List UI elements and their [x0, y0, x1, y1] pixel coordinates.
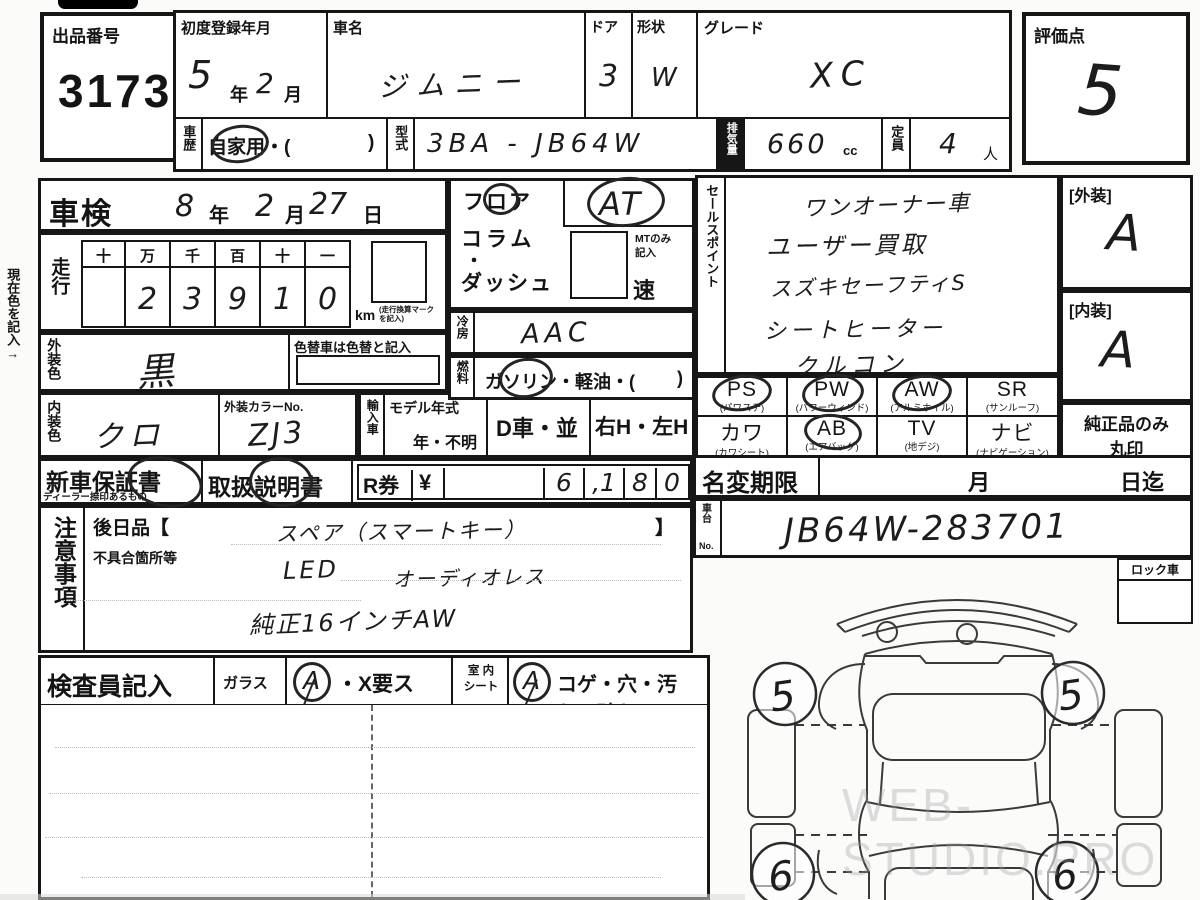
shape-cell: 形状 W	[633, 13, 698, 119]
mileage-mark-box	[371, 241, 427, 303]
divider	[451, 658, 453, 704]
transfer-due-label: 日迄	[1120, 465, 1164, 497]
dealer-car-cell: D車・並	[488, 395, 591, 455]
lot-number-value: 3173	[58, 64, 172, 118]
dotted-line	[231, 544, 661, 545]
later-items-close: 】	[655, 513, 674, 540]
later-items-label: 後日品【	[93, 513, 169, 540]
notes-box: 注意事項 後日品【 スペア（スマートキー） 】 不具合箇所等 LED オーディオ…	[38, 505, 693, 653]
defects-label: 不具合箇所等	[93, 548, 177, 568]
mileage-header: 十	[261, 240, 306, 266]
chassis-label-top: 車台	[699, 503, 711, 523]
defect-value-wheels: 純正16インチAW	[248, 598, 457, 640]
mileage-note: (走行換算マーク を記入)	[379, 305, 447, 324]
exterior-color-label: 外装色	[47, 338, 61, 380]
car-name-value: ジムニー	[377, 60, 530, 105]
mileage-header: 十	[81, 240, 126, 266]
shape-value: W	[651, 63, 677, 93]
chassis-label-no: No.	[699, 541, 714, 551]
equipment-name: (サンルーフ)	[968, 400, 1057, 414]
notes-label-cell: 注意事項	[41, 508, 85, 650]
capacity-unit: 人	[983, 143, 998, 164]
price-digit: 8	[623, 468, 655, 499]
first-registration-label: 初度登録年月	[181, 17, 271, 38]
dotted-line	[61, 600, 361, 601]
equipment-cell-ab: AB (エアバッグ)	[788, 417, 878, 455]
tire-grade-rear-left: 6	[766, 853, 796, 900]
equipment-grid: PS (パワステ) PW (パワーウィンド) AW (アルミホイル) SR (サ…	[695, 375, 1060, 458]
grade-value: XC	[809, 53, 873, 96]
door-cell: ドア 3	[586, 13, 633, 119]
capacity-label: 定員	[890, 125, 903, 151]
sales-point-line: シートヒーター	[764, 310, 947, 345]
hood-step-line	[865, 656, 1052, 663]
history-close-paren: )	[368, 132, 374, 154]
color-change-note: 色替車は色替と記入	[294, 337, 411, 356]
exterior-color-value: 黒	[134, 340, 176, 398]
fuel-label: 燃料	[456, 360, 468, 384]
shaken-month: 2	[255, 189, 274, 224]
grade-cell: グレード XC	[698, 13, 1009, 119]
divider	[507, 658, 509, 704]
shaken-year-unit: 年	[209, 199, 229, 228]
mileage-grid: 十 万 千 百 十 一 2 3 9 1 0	[81, 240, 351, 328]
door-label: ドア	[590, 17, 618, 37]
color-change-box	[296, 355, 440, 385]
equipment-code: SR	[968, 378, 1057, 402]
divider	[818, 458, 820, 495]
transmission-box: フロア コラム ・ ダッシュ AT MTのみ 記入 速	[448, 178, 695, 310]
mt-note-line1: MTのみ	[635, 233, 671, 247]
lock-car-box: ロック車	[1117, 558, 1193, 624]
exterior-rating-value: A	[1106, 203, 1143, 263]
lock-car-label: ロック車	[1119, 560, 1191, 581]
hand-circle-mark	[496, 354, 555, 401]
score-label: 評価点	[1034, 22, 1085, 47]
dotted-line	[45, 837, 703, 838]
displacement-label: 排気量	[725, 122, 736, 155]
sales-point-line: ユーザー買取	[766, 225, 928, 263]
equipment-name: (地デジ)	[878, 439, 966, 453]
chassis-number-row: 車台 No. JB64W-283701	[693, 498, 1193, 558]
equipment-cell-sr: SR (サンルーフ)	[968, 378, 1057, 417]
equipment-cell-navi: ナビ (ナビゲーション)	[968, 417, 1057, 455]
sales-point-line: ワンオーナー車	[802, 185, 971, 223]
mt-speed-box	[570, 231, 628, 299]
equipment-cell-ps: PS (パワステ)	[698, 378, 788, 417]
equipment-cell-leather: カワ (カワシート)	[698, 417, 788, 455]
price-digit: 0	[655, 468, 687, 499]
watermark: WEB-STUDIO.PRO	[842, 778, 1200, 886]
sales-points-label-cell: セールスポイント	[698, 178, 726, 372]
mileage-header: 一	[306, 240, 351, 266]
at-cell: AT	[563, 181, 692, 227]
mileage-digit	[81, 266, 126, 328]
recycle-ticket-table: R券 ¥ 6 ,1 8 0	[357, 464, 690, 500]
displacement-value-cell: 660 cc	[745, 119, 883, 169]
divider	[285, 658, 287, 704]
chassis-number-value: JB64W-283701	[784, 507, 1070, 552]
chassis-label-cell: 車台 No.	[696, 501, 722, 555]
front-fender-left	[819, 664, 865, 729]
model-year-label: モデル年式	[389, 398, 459, 418]
mileage-digit: 1	[261, 266, 306, 328]
score-box: 評価点 5	[1022, 12, 1190, 165]
sales-points-label: セールスポイント	[705, 184, 718, 288]
sales-points-box: セールスポイント ワンオーナー車 ユーザー買取 スズキセーフティS シートヒータ…	[695, 175, 1060, 375]
exterior-color-box: 外装色 黒 色替車は色替と記入	[38, 332, 448, 392]
fuel-close-paren: )	[677, 368, 683, 389]
price-digit: ,1	[583, 468, 623, 499]
equipment-cell-aw: AW (アルミホイル)	[878, 378, 968, 417]
lot-number-box: 出品番号 3173	[40, 12, 192, 162]
grade-label: グレード	[704, 17, 764, 38]
defect-value-audioless: オーディオレス	[393, 561, 546, 593]
handle-value: 右H・左H	[595, 411, 688, 441]
inspection-writing-area	[38, 705, 710, 900]
hood-circle	[877, 622, 897, 642]
chassis-label: 車台	[699, 503, 711, 523]
roof-panel	[873, 694, 1045, 760]
shape-label: 形状	[637, 17, 665, 37]
seat-label-bottom: シート	[457, 680, 505, 696]
glass-options: ・X要ス	[337, 668, 414, 698]
mileage-digit: 2	[126, 266, 171, 328]
dashed-divider	[371, 705, 373, 897]
transfer-deadline-label: 名変期限	[702, 463, 798, 498]
year-unit: 年	[230, 81, 248, 107]
price-digit: 6	[543, 468, 583, 499]
displacement-unit: cc	[843, 143, 857, 158]
mileage-box: 走行 十 万 千 百 十 一 2 3 9 1 0 km (走行換算マーク を記入…	[38, 232, 448, 332]
model-code-value: 3BA - JB64W	[427, 129, 644, 159]
hand-circle-mark	[585, 174, 667, 231]
interior-rating-box: [内装] A	[1060, 290, 1193, 402]
hand-circle-mark	[209, 122, 271, 167]
car-name-cell: 車名 ジムニー	[328, 13, 586, 119]
price-digit	[443, 468, 543, 499]
dealer-car-value: D車・並	[496, 411, 578, 443]
model-code-label: 型式	[394, 125, 407, 151]
mileage-header: 百	[216, 240, 261, 266]
mileage-unit: km	[355, 307, 375, 323]
documents-row: 新車保証書 ディーラー捺印あるもの 取扱説明書 R券 ¥ 6 ,1 8 0	[38, 458, 693, 505]
first-registration-month: 2	[256, 67, 274, 100]
mileage-header: 万	[126, 240, 171, 266]
ac-row: 冷房 AAC	[448, 310, 695, 355]
dotted-line	[55, 747, 695, 748]
mileage-digit: 0	[306, 266, 351, 328]
sales-point-line: スズキセーフティS	[770, 267, 968, 304]
genuine-parts-box: 純正品のみ 丸印	[1060, 402, 1193, 458]
notes-label: 注意事項	[51, 516, 74, 608]
first-registration-cell: 初度登録年月 5 年 2 月	[176, 13, 328, 119]
genuine-parts-line1: 純正品のみ	[1063, 410, 1190, 435]
glass-label: ガラス	[223, 672, 268, 693]
equipment-cell-tv: TV (地デジ)	[878, 417, 968, 455]
shaken-month-unit: 月	[285, 199, 305, 228]
dash-label: ダッシュ	[461, 267, 553, 297]
seat-label-top: 室 内	[457, 664, 505, 680]
mileage-header: 千	[171, 240, 216, 266]
top-spec-table: 初度登録年月 5 年 2 月 車名 ジムニー ドア 3 形状 W グレード XC…	[173, 10, 1012, 172]
equipment-cell-pw: PW (パワーウィンド)	[788, 378, 878, 417]
color-no-cell: 外装カラーNo. ZJ3	[218, 395, 361, 455]
ac-label: 冷房	[456, 315, 468, 339]
car-name-label: 車名	[333, 17, 363, 38]
month-unit: 月	[284, 81, 302, 107]
mileage-note-line1: (走行換算マーク	[379, 305, 447, 314]
lot-number-label: 出品番号	[52, 22, 120, 47]
shaken-label: 車検	[49, 189, 113, 233]
color-no-label: 外装カラーNo.	[224, 398, 303, 415]
model-code-value-cell: 3BA - JB64W	[415, 119, 718, 169]
interior-rating-label: [内装]	[1069, 297, 1112, 321]
model-code-label-cell: 型式	[388, 119, 415, 169]
speed-label: 速	[633, 273, 655, 305]
interior-color-value: クロ	[92, 410, 165, 456]
hand-circle-mark	[513, 662, 551, 702]
import-label-cell: 輸入車	[361, 395, 385, 455]
mileage-note-line2: を記入)	[379, 314, 447, 323]
equipment-code: カワ	[698, 417, 786, 447]
seat-label: 室 内 シート	[457, 664, 505, 695]
interior-rating-value: A	[1100, 320, 1136, 379]
mileage-digit: 9	[216, 266, 261, 328]
auction-sheet-scan: { "watermark": "WEB-STUDIO.PRO", "margin…	[0, 0, 1200, 900]
exterior-rating-box: [外装] A	[1060, 175, 1193, 290]
cowl-line	[865, 641, 1052, 654]
transfer-deadline-row: 名変期限 月 日迄	[693, 455, 1193, 498]
scan-artifact	[0, 894, 745, 900]
manual-cell: 取扱説明書	[203, 461, 353, 502]
history-label-cell: 車歴	[176, 119, 203, 169]
history-value-cell: 自家用・( )	[203, 119, 388, 169]
capacity-label-cell: 定員	[883, 119, 911, 169]
model-year-value: 年・不明	[413, 429, 477, 453]
warranty-sublabel: ディーラー捺印あるもの	[43, 489, 147, 503]
mileage-label: 走行	[49, 257, 68, 295]
door-value: 3	[599, 59, 618, 94]
displacement-value: 660	[767, 129, 828, 160]
margin-note: 現在色を記入→	[6, 268, 19, 438]
capacity-value-cell: 4 人	[911, 119, 1009, 169]
inspector-row: 検査員記入 ガラス A ・X要ス 室 内 シート A コゲ・穴・汚れ・破れ	[38, 655, 710, 707]
exterior-rating-label: [外装]	[1069, 182, 1112, 206]
dotted-line	[81, 877, 661, 878]
yen-symbol: ¥	[411, 470, 441, 501]
model-year-cell: モデル年式 年・不明	[385, 395, 488, 455]
displacement-label-cell: 排気量	[718, 119, 745, 169]
scan-artifact	[58, 0, 138, 9]
defect-value-led: LED	[283, 555, 340, 585]
import-box: 輸入車 モデル年式 年・不明 D車・並 右H・左H	[358, 392, 695, 458]
mt-note-line2: 記入	[635, 247, 671, 261]
mileage-digit: 3	[171, 266, 216, 328]
capacity-value: 4	[939, 127, 957, 160]
inspector-label: 検査員記入	[47, 667, 172, 703]
mt-note: MTのみ 記入	[635, 233, 671, 260]
shaken-day-unit: 日	[363, 199, 383, 228]
ac-label-cell: 冷房	[451, 313, 475, 352]
divider	[213, 658, 215, 704]
handle-cell: 右H・左H	[591, 395, 692, 455]
fuel-label-cell: 燃料	[451, 358, 475, 397]
shaken-year: 8	[175, 189, 194, 224]
dotted-line	[49, 793, 699, 794]
warranty-cell: 新車保証書 ディーラー捺印あるもの	[41, 461, 203, 502]
equipment-code: TV	[878, 417, 966, 441]
shaken-day: 27	[309, 187, 347, 222]
fuel-row: 燃料 ガソリン・軽油・( )	[448, 355, 695, 400]
import-label: 輸入車	[366, 399, 378, 435]
first-registration-year: 5	[188, 53, 212, 97]
recycle-ticket-label: R券	[363, 470, 405, 500]
color-change-cell: 色替車は色替と記入	[288, 335, 445, 389]
equipment-code: ナビ	[968, 417, 1057, 447]
color-no-value: ZJ3	[247, 415, 307, 454]
history-label: 車歴	[182, 125, 195, 151]
ac-value: AAC	[520, 317, 592, 350]
transfer-month-unit: 月	[968, 465, 990, 497]
score-value: 5	[1075, 49, 1125, 134]
shaken-box: 車検 8 年 2 月 27 日	[38, 178, 448, 232]
interior-color-box: 内装色 クロ 外装カラーNo. ZJ3	[38, 392, 358, 458]
dotted-line	[341, 580, 681, 581]
interior-color-label: 内装色	[47, 400, 61, 442]
